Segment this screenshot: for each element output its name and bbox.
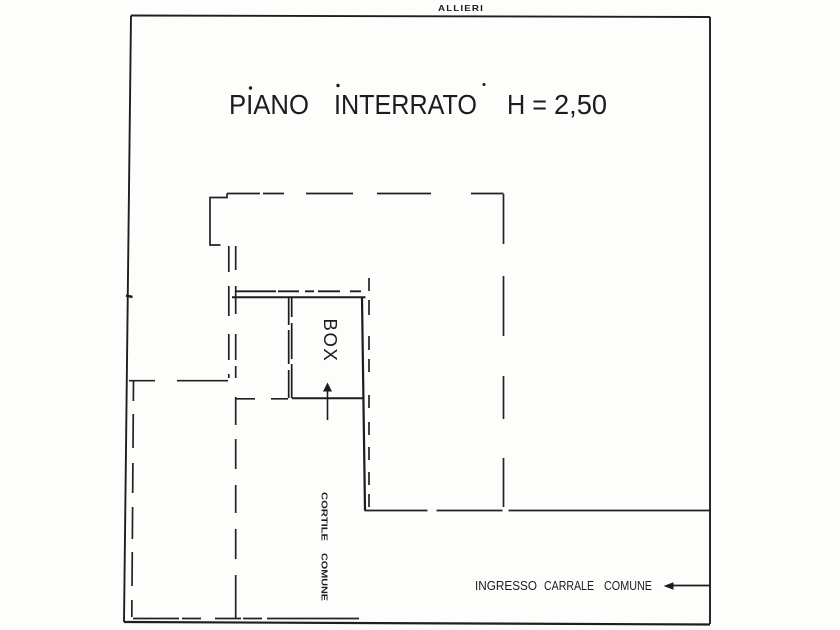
svg-text:INGRESSO: INGRESSO: [475, 579, 537, 593]
svg-text:COMUNE: COMUNE: [604, 579, 652, 593]
svg-text:2,50: 2,50: [554, 89, 607, 120]
svg-text:BOX: BOX: [320, 319, 341, 363]
svg-text:H =: H =: [507, 89, 547, 120]
svg-text:ALLIERI: ALLIERI: [438, 3, 484, 13]
svg-text:COMUNE: COMUNE: [320, 553, 329, 602]
svg-text:CARRALE: CARRALE: [544, 579, 594, 593]
svg-text:PIANO: PIANO: [229, 89, 309, 120]
svg-text:CORTILE: CORTILE: [320, 492, 329, 542]
svg-text:INTERRATO: INTERRATO: [334, 89, 477, 120]
